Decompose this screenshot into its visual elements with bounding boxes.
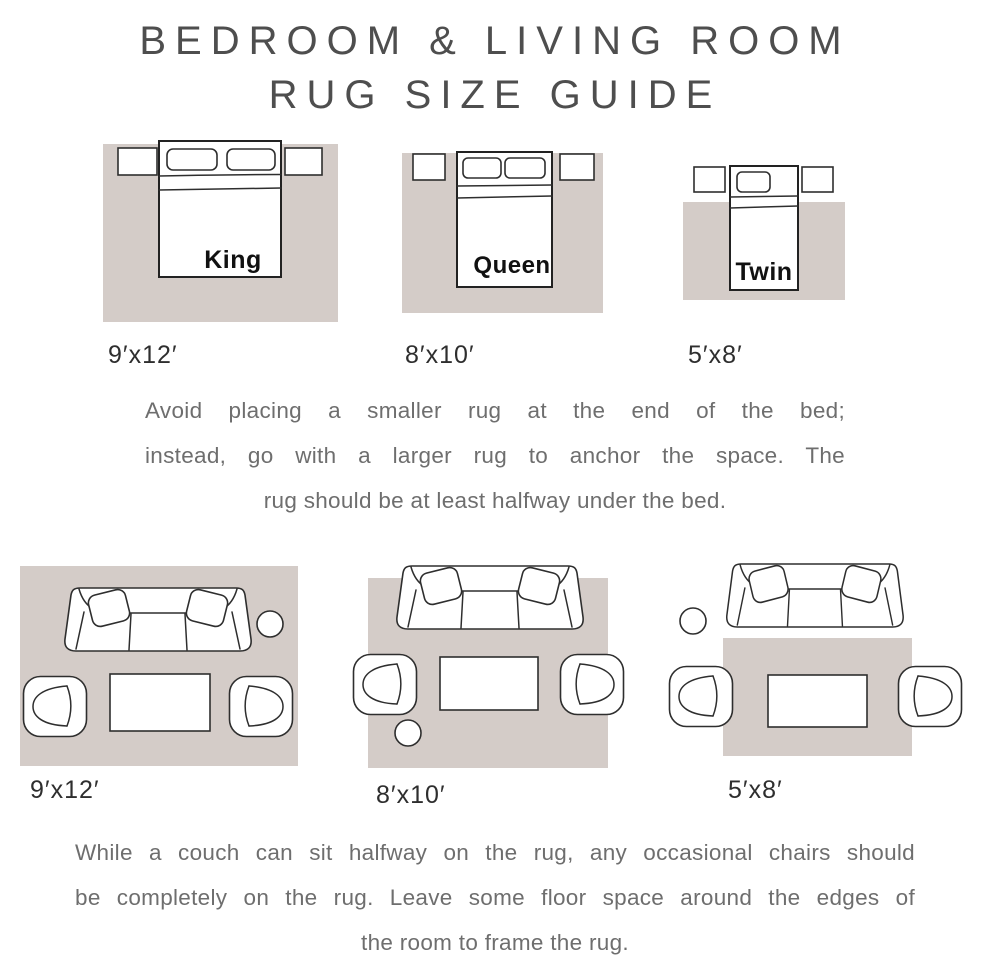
rug-dimension-label: 8′x10′ (405, 341, 475, 370)
living-room-note: While a couch can sit halfway on the rug… (75, 830, 915, 962)
pillow-icon (463, 158, 501, 178)
armchair-icon (670, 667, 733, 727)
bedroom-diagram-queen: Queen (400, 138, 610, 328)
armchair-icon (561, 655, 624, 715)
bedroom-note-line-2: instead, go with a larger rug to anchor … (145, 433, 845, 478)
bedroom-note-line-3: rug should be at least halfway under the… (145, 478, 845, 523)
coffee-table-icon (110, 674, 210, 731)
rug-dimension-label: 8′x10′ (376, 781, 446, 810)
armchair-icon (354, 655, 417, 715)
coffee-table-icon (768, 675, 867, 727)
living-room-note-line-1: While a couch can sit halfway on the rug… (75, 830, 915, 875)
side-table-icon (257, 611, 283, 637)
side-table-icon (395, 720, 421, 746)
rug-dimension-label: 9′x12′ (108, 341, 178, 370)
sofa-icon (65, 588, 251, 651)
sofa-icon (397, 566, 583, 629)
nightstand-icon (560, 154, 594, 180)
living-room-note-line-3: the room to frame the rug. (75, 920, 915, 962)
living-room-note-line-2: be completely on the rug. Leave some flo… (75, 875, 915, 920)
page-title-line-1: BEDROOM & LIVING ROOM (0, 14, 990, 68)
side-table-icon (680, 608, 706, 634)
rug-dimension-label: 5′x8′ (688, 341, 743, 370)
living-room-diagram-9x12 (10, 558, 310, 770)
pillow-icon (737, 172, 770, 192)
nightstand-icon (285, 148, 322, 175)
coffee-table-icon (440, 657, 538, 710)
living-room-diagram-8x10 (340, 556, 636, 774)
nightstand-icon (802, 167, 833, 192)
page-title-line-2: RUG SIZE GUIDE (0, 68, 990, 122)
bedroom-diagram-twin: Twin (670, 138, 850, 308)
rug-dimension-label: 5′x8′ (728, 776, 783, 805)
bed-size-name: King (204, 246, 262, 274)
nightstand-icon (413, 154, 445, 180)
bed-size-name: Twin (735, 258, 792, 286)
rug-size-guide-page: BEDROOM & LIVING ROOM RUG SIZE GUIDE Kin… (0, 0, 990, 962)
page-title: BEDROOM & LIVING ROOM RUG SIZE GUIDE (0, 14, 990, 122)
armchair-icon (230, 677, 293, 737)
armchair-icon (899, 667, 962, 727)
armchair-icon (24, 677, 87, 737)
rug-dimension-label: 9′x12′ (30, 776, 100, 805)
living-room-diagram-5x8 (655, 552, 975, 767)
bedroom-note-line-1: Avoid placing a smaller rug at the end o… (145, 388, 845, 433)
bed-size-name: Queen (473, 252, 550, 279)
bedroom-diagram-king: King (103, 138, 343, 333)
nightstand-icon (118, 148, 157, 175)
pillow-icon (505, 158, 545, 178)
bedroom-note: Avoid placing a smaller rug at the end o… (145, 388, 845, 523)
pillow-icon (167, 149, 217, 170)
pillow-icon (227, 149, 275, 170)
sofa-icon (727, 564, 903, 627)
nightstand-icon (694, 167, 725, 192)
